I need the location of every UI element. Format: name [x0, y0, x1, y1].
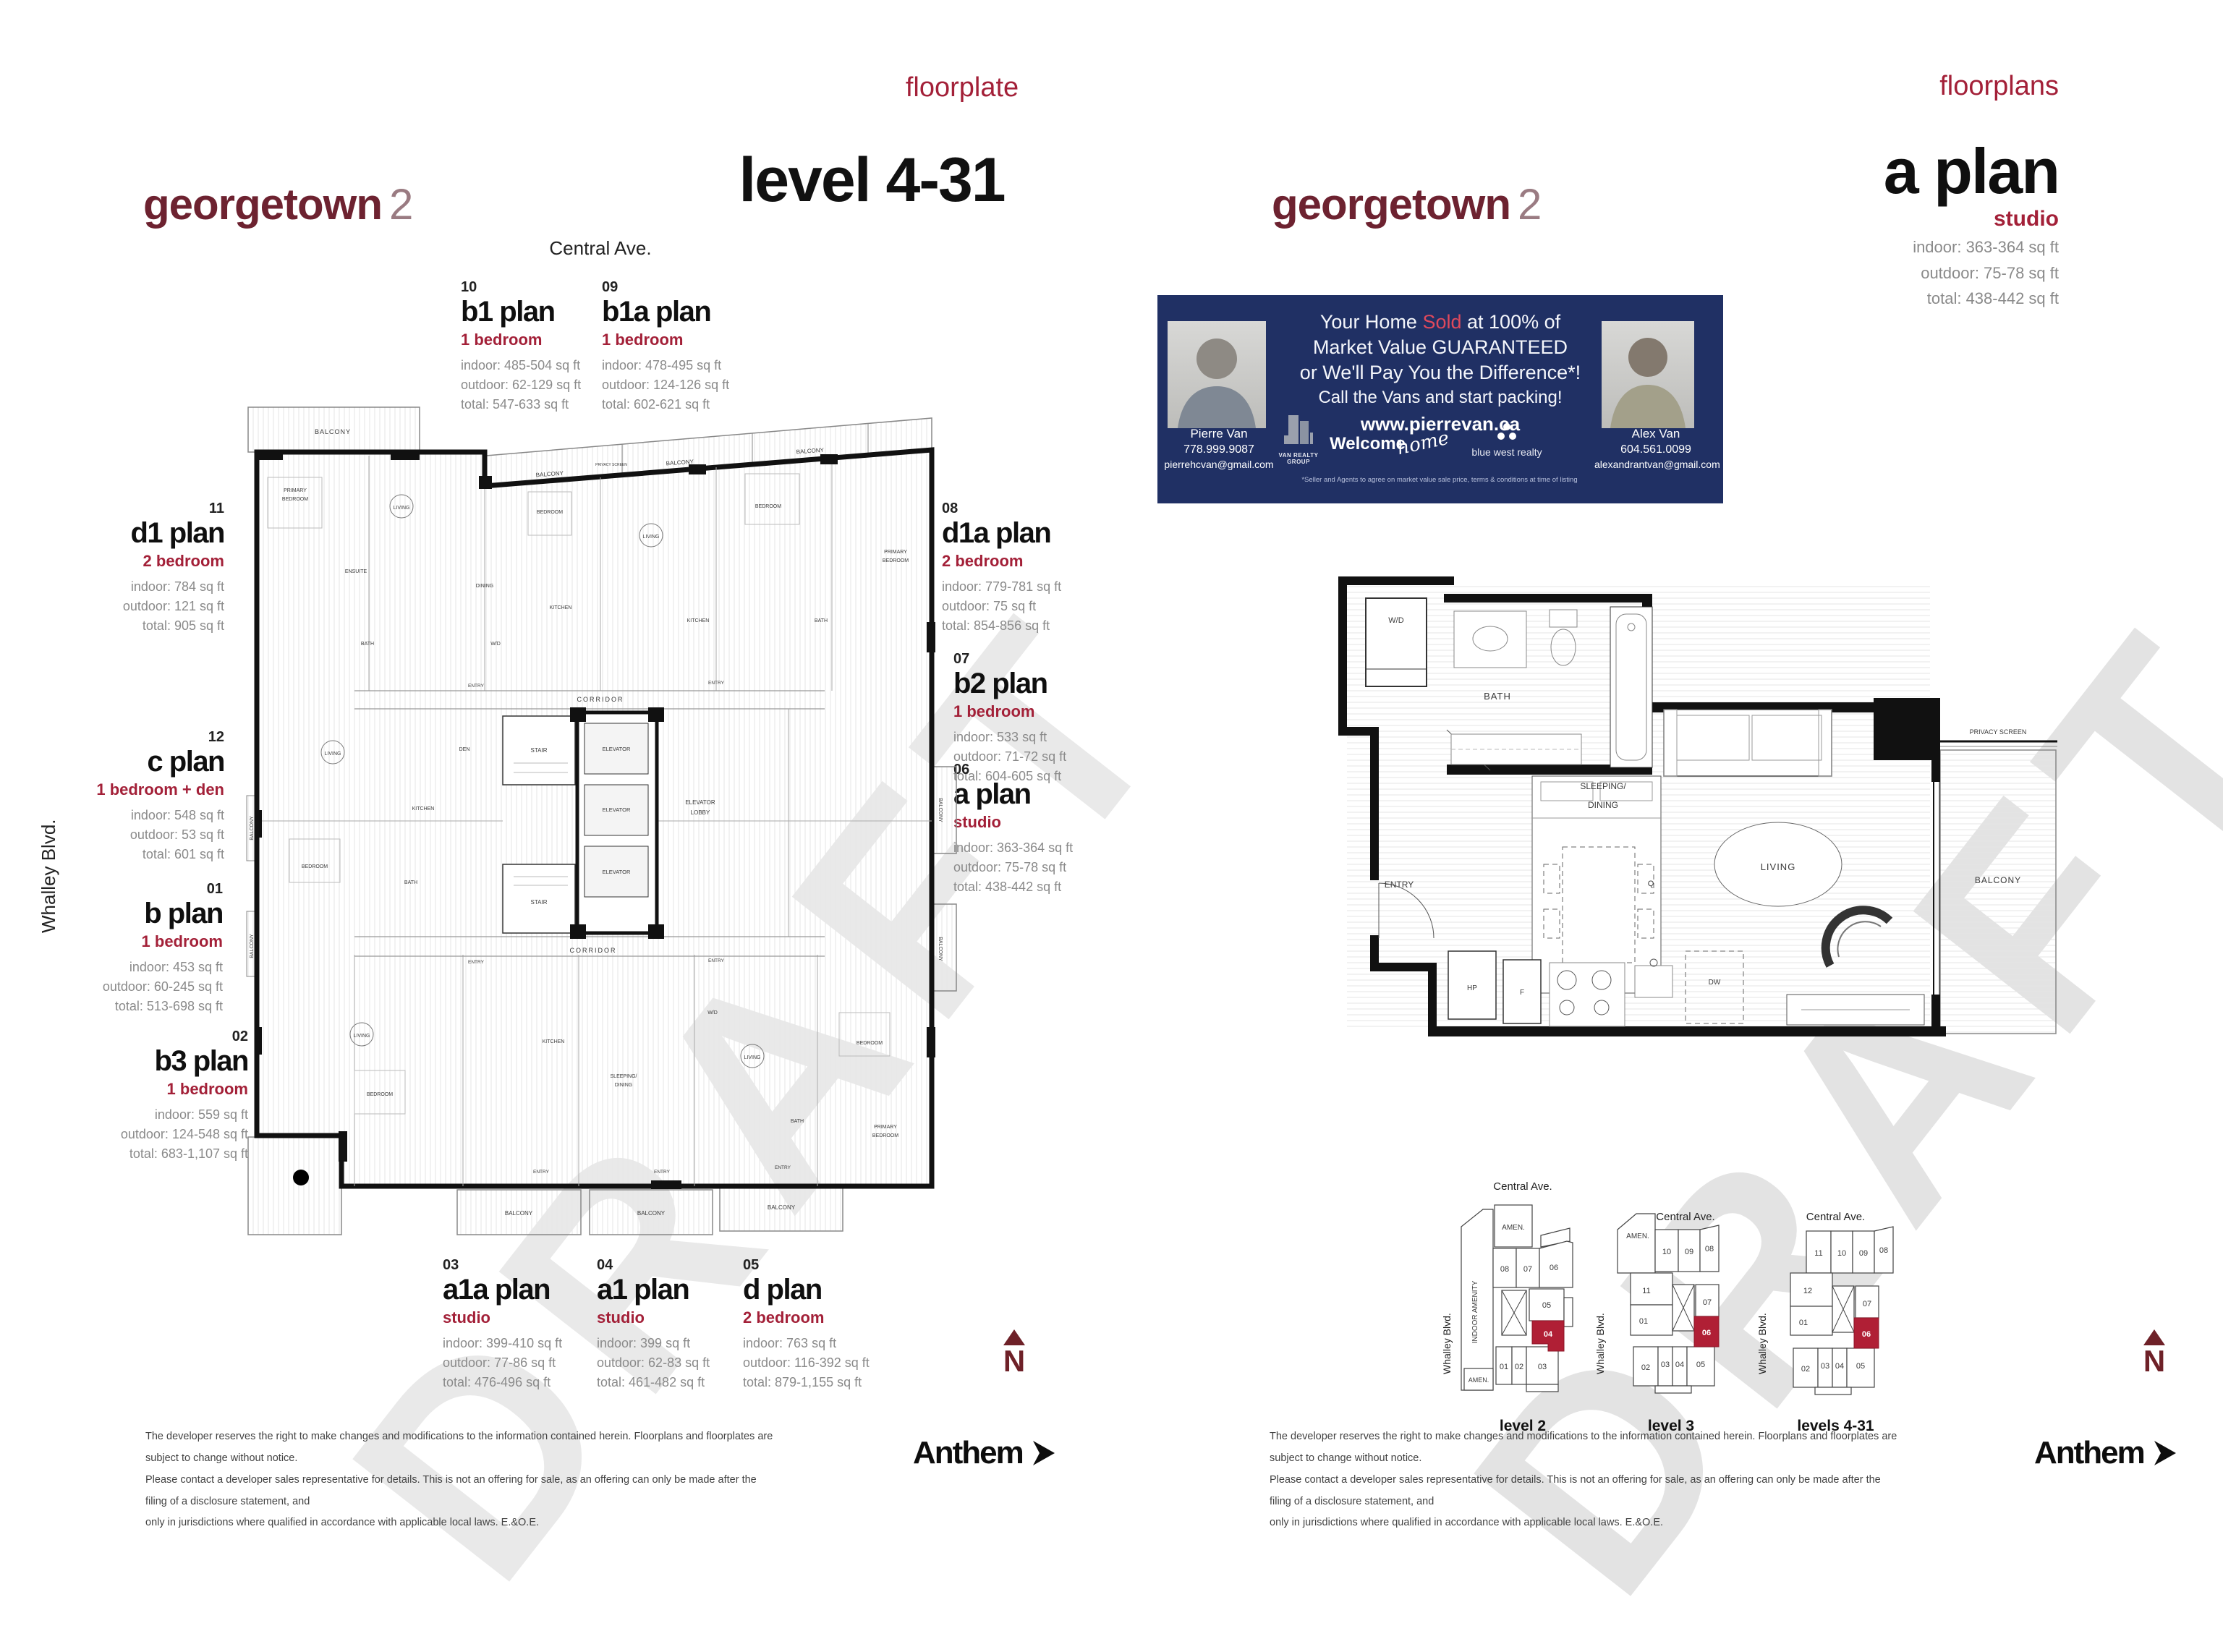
right-project-title: georgetown2 [1272, 179, 1541, 229]
svg-text:KITCHEN: KITCHEN [412, 806, 435, 812]
svg-text:STAIR: STAIR [531, 899, 548, 906]
svg-text:Q: Q [1648, 880, 1654, 888]
svg-text:W/D: W/D [490, 642, 501, 647]
svg-text:04: 04 [1675, 1361, 1684, 1369]
svg-text:KITCHEN: KITCHEN [687, 618, 710, 623]
plan-outdoor: outdoor: 124-548 sq ft [67, 1125, 248, 1144]
plan-name: b3 plan [67, 1047, 248, 1076]
plan-indoor: indoor: 784 sq ft [43, 577, 224, 597]
disclaimer-right: The developer reserves the right to make… [1270, 1426, 1899, 1534]
svg-text:BATH: BATH [815, 618, 828, 623]
plan-total: total: 879-1,155 sq ft [743, 1373, 909, 1392]
svg-text:BALCONY: BALCONY [938, 798, 943, 822]
anthem-logo-left: Anthem [913, 1435, 1056, 1471]
project-number: 2 [1518, 180, 1541, 229]
plan-card-d: 05 d plan 2 bedroom indoor: 763 sq ft ou… [743, 1257, 909, 1392]
plan-number: 02 [67, 1029, 248, 1045]
plan-indoor: indoor: 399 sq ft [597, 1334, 756, 1353]
svg-text:ENTRY: ENTRY [533, 1170, 550, 1175]
svg-text:SLEEPING/: SLEEPING/ [611, 1074, 637, 1079]
plan-card-c: 12 c plan 1 bedroom + den indoor: 548 sq… [22, 729, 224, 864]
svg-text:BEDROOM: BEDROOM [872, 1133, 898, 1138]
plan-outdoor: outdoor: 60-245 sq ft [42, 977, 223, 997]
svg-text:05: 05 [1856, 1362, 1865, 1371]
level-2-diagram: AMEN.INDOOR AMENITY0807060504010203AMEN. [1460, 1204, 1584, 1400]
headline-line2: Market Value GUARANTEED [1280, 335, 1600, 360]
plan-type: 2 bedroom [743, 1308, 909, 1327]
svg-text:BEDROOM: BEDROOM [883, 558, 909, 563]
svg-text:06: 06 [1862, 1330, 1871, 1339]
plan-indoor: indoor: 548 sq ft [22, 806, 224, 825]
right-plan-type: studio [1736, 207, 2059, 231]
plan-total: total: 438-442 sq ft [953, 877, 1113, 897]
svg-text:BATH: BATH [791, 1119, 804, 1124]
street-whalley-blvd-l2: Whalley Blvd. [1441, 1280, 1453, 1374]
svg-text:ENTRY: ENTRY [775, 1165, 791, 1170]
plan-card-b1a: 09 b1a plan 1 bedroom indoor: 478-495 sq… [602, 279, 768, 414]
svg-text:BALCONY: BALCONY [250, 934, 255, 958]
svg-text:ENTRY: ENTRY [468, 960, 485, 965]
north-arrow-right: N [2133, 1329, 2176, 1377]
plan-type: 1 bedroom [461, 331, 620, 349]
plan-name: b2 plan [953, 669, 1113, 699]
disclaimer-line: Please contact a developer sales represe… [1270, 1470, 1899, 1513]
plan-number: 01 [42, 881, 223, 898]
plan-outdoor: outdoor: 53 sq ft [22, 825, 224, 845]
anthem-wordmark: Anthem [913, 1435, 1023, 1471]
plan-type: studio [443, 1308, 602, 1327]
plan-indoor: indoor: 478-495 sq ft [602, 356, 768, 375]
headline-line3: or We'll Pay You the Difference*! [1280, 360, 1600, 386]
anthem-wordmark: Anthem [2034, 1435, 2144, 1471]
svg-text:LIVING: LIVING [325, 752, 341, 757]
right-corner-label: floorplans [1852, 71, 2059, 102]
plan-type: 2 bedroom [942, 552, 1115, 571]
svg-text:11: 11 [1642, 1287, 1650, 1295]
north-triangle-icon [1003, 1329, 1025, 1345]
plan-name: b1 plan [461, 297, 620, 327]
blue-west-caption: blue west realty [1460, 446, 1554, 458]
svg-text:LIVING: LIVING [394, 506, 410, 511]
svg-text:BALCONY: BALCONY [938, 937, 943, 961]
plan-type: studio [953, 813, 1113, 832]
plan-indoor: indoor: 363-364 sq ft [953, 838, 1113, 858]
disclaimer-line: The developer reserves the right to make… [1270, 1426, 1899, 1470]
svg-text:ELEVATOR: ELEVATOR [685, 799, 715, 806]
plan-indoor: indoor: 533 sq ft [953, 728, 1113, 747]
plan-type: studio [597, 1308, 756, 1327]
plan-name: a plan [953, 780, 1113, 809]
plan-type: 1 bedroom + den [22, 780, 224, 799]
street-whalley-blvd-l3: Whalley Blvd. [1594, 1280, 1606, 1374]
north-letter: N [2133, 1345, 2176, 1377]
right-plan-stats: indoor: 363-364 sq ft outdoor: 75-78 sq … [1736, 234, 2059, 312]
svg-text:BEDROOM: BEDROOM [367, 1092, 393, 1097]
plan-type: 2 bedroom [43, 552, 224, 571]
plan-number: 11 [43, 501, 224, 517]
svg-text:09: 09 [1685, 1248, 1693, 1256]
script-welcome: Welcome [1330, 434, 1406, 454]
svg-text:BALCONY: BALCONY [637, 1210, 666, 1217]
project-number: 2 [389, 180, 412, 229]
street-central-ave-left: Central Ave. [528, 237, 673, 260]
svg-text:BALCONY: BALCONY [250, 816, 255, 840]
svg-text:BATH: BATH [361, 642, 374, 647]
plan-name: b1a plan [602, 297, 768, 327]
svg-text:01: 01 [1639, 1317, 1648, 1326]
plan-name: a1 plan [597, 1275, 756, 1305]
svg-text:STAIR: STAIR [531, 747, 548, 754]
plan-type: 1 bedroom [42, 932, 223, 951]
left-project-title: georgetown2 [143, 179, 412, 229]
plan-outdoor: outdoor: 116-392 sq ft [743, 1353, 909, 1373]
plan-card-d1: 11 d1 plan 2 bedroom indoor: 784 sq ft o… [43, 501, 224, 636]
plan-name: d plan [743, 1275, 909, 1305]
svg-text:CORRIDOR: CORRIDOR [570, 947, 617, 954]
plan-number: 05 [743, 1257, 909, 1274]
svg-text:BEDROOM: BEDROOM [857, 1041, 883, 1046]
svg-text:ELEVATOR: ELEVATOR [603, 806, 631, 813]
svg-text:01: 01 [1799, 1319, 1808, 1327]
stat-indoor: indoor: 363-364 sq ft [1736, 234, 2059, 260]
disclaimer-line: only in jurisdictions where qualified in… [1270, 1512, 1899, 1534]
agent-name: Pierre Van [1157, 427, 1280, 441]
svg-text:PRIVACY SCREEN: PRIVACY SCREEN [1970, 728, 2027, 736]
project-name: georgetown [143, 180, 382, 229]
svg-text:KITCHEN: KITCHEN [543, 1039, 565, 1044]
plan-number: 12 [22, 729, 224, 746]
svg-text:ENTRY: ENTRY [708, 681, 725, 686]
svg-text:F: F [1520, 989, 1524, 997]
svg-text:W/D: W/D [707, 1010, 718, 1016]
headline-pre: Your Home [1320, 311, 1423, 333]
svg-text:09: 09 [1859, 1249, 1868, 1258]
plan-card-a1a: 03 a1a plan studio indoor: 399-410 sq ft… [443, 1257, 602, 1392]
plan-indoor: indoor: 779-781 sq ft [942, 577, 1115, 597]
svg-text:ELEVATOR: ELEVATOR [603, 869, 631, 875]
svg-text:ENTRY: ENTRY [1385, 880, 1414, 890]
levels-4-31-diagram: 111009081201070602030405 [1776, 1209, 1895, 1399]
plan-card-b1: 10 b1 plan 1 bedroom indoor: 485-504 sq … [461, 279, 620, 414]
plan-outdoor: outdoor: 75 sq ft [942, 597, 1115, 616]
level-3-diagram: AMEN.1009081101070602030405 [1613, 1204, 1722, 1400]
svg-text:DW: DW [1709, 979, 1721, 987]
svg-text:05: 05 [1542, 1301, 1551, 1310]
plan-indoor: indoor: 559 sq ft [67, 1105, 248, 1125]
plan-type: 1 bedroom [67, 1080, 248, 1099]
svg-text:07: 07 [1703, 1298, 1712, 1307]
floorplate-drawing: BALCONYBALCONYBALCONYBALCONYPRIVACY SCRE… [246, 405, 962, 1259]
svg-text:05: 05 [1696, 1361, 1705, 1369]
north-letter: N [993, 1345, 1036, 1377]
banner-call-line: Call the Vans and start packing! [1280, 388, 1600, 408]
svg-text:BEDROOM: BEDROOM [537, 510, 563, 515]
svg-text:LIVING: LIVING [354, 1034, 370, 1039]
a-plan-drawing: W/DBATHSLEEPING/DININGQLIVINGENTRYBALCON… [1324, 561, 2062, 1052]
headline-sold: Sold [1422, 311, 1461, 333]
agent-photo-pierre [1168, 321, 1266, 428]
svg-text:W/D: W/D [1388, 616, 1403, 625]
svg-text:BATH: BATH [1484, 691, 1511, 702]
svg-text:02: 02 [1801, 1365, 1810, 1374]
svg-text:11: 11 [1814, 1249, 1822, 1258]
svg-text:02: 02 [1641, 1363, 1650, 1372]
agent-phone: 604.561.0099 [1594, 443, 1717, 456]
street-whalley-blvd-l4: Whalley Blvd. [1756, 1280, 1768, 1374]
plan-outdoor: outdoor: 62-83 sq ft [597, 1353, 756, 1373]
plan-indoor: indoor: 453 sq ft [42, 958, 223, 977]
plan-number: 10 [461, 279, 620, 296]
svg-text:AMEN.: AMEN. [1502, 1224, 1525, 1232]
disclaimer-line: Please contact a developer sales represe… [145, 1470, 775, 1513]
svg-text:LIVING: LIVING [643, 535, 660, 540]
disclaimer-left: The developer reserves the right to make… [145, 1426, 775, 1534]
plan-total: total: 601 sq ft [22, 845, 224, 864]
van-realty-caption: VAN REALTY GROUP [1267, 452, 1330, 465]
plan-total: total: 461-482 sq ft [597, 1373, 756, 1392]
svg-text:04: 04 [1835, 1362, 1844, 1371]
plan-number: 04 [597, 1257, 756, 1274]
anthem-arrow-icon [2150, 1441, 2177, 1465]
anthem-logo-right: Anthem [2034, 1435, 2177, 1471]
svg-text:PRIMARY: PRIMARY [284, 488, 307, 493]
plan-total: total: 683-1,107 sq ft [67, 1144, 248, 1164]
plan-outdoor: outdoor: 62-129 sq ft [461, 375, 620, 395]
plan-name: d1 plan [43, 519, 224, 548]
agent-email: pierrehcvan@gmail.com [1157, 459, 1280, 470]
svg-text:10: 10 [1837, 1249, 1846, 1258]
contact-pierre: Pierre Van 778.999.9087 pierrehcvan@gmai… [1157, 427, 1280, 470]
svg-text:06: 06 [1550, 1264, 1558, 1272]
left-corner-label: floorplate [832, 72, 1092, 103]
svg-text:07: 07 [1523, 1265, 1532, 1274]
svg-text:03: 03 [1821, 1362, 1829, 1371]
svg-text:INDOOR AMENITY: INDOOR AMENITY [1471, 1280, 1479, 1343]
svg-text:AMEN.: AMEN. [1468, 1376, 1489, 1384]
plan-type: 1 bedroom [602, 331, 768, 349]
svg-text:PRIMARY: PRIMARY [884, 550, 907, 555]
plan-total: total: 854-856 sq ft [942, 616, 1115, 636]
disclaimer-line: only in jurisdictions where qualified in… [145, 1512, 775, 1534]
plan-number: 08 [942, 501, 1115, 517]
stat-total: total: 438-442 sq ft [1736, 286, 2059, 312]
right-plan-title: a plan [1736, 135, 2059, 208]
plan-name: d1a plan [942, 519, 1115, 548]
anthem-arrow-icon [1029, 1441, 1056, 1465]
svg-text:AMEN.: AMEN. [1626, 1232, 1649, 1240]
svg-text:KITCHEN: KITCHEN [550, 605, 572, 610]
svg-text:LIVING: LIVING [1761, 861, 1796, 872]
banner-headline: Your Home Sold at 100% of Market Value G… [1280, 310, 1600, 386]
plan-total: total: 476-496 sq ft [443, 1373, 602, 1392]
svg-text:ENTRY: ENTRY [468, 684, 485, 689]
north-arrow-left: N [993, 1329, 1036, 1377]
plan-outdoor: outdoor: 124-126 sq ft [602, 375, 768, 395]
banner-fine-print: *Seller and Agents to agree on market va… [1237, 476, 1642, 484]
left-page-title: level 4-31 [709, 145, 1034, 216]
project-name: georgetown [1272, 180, 1510, 229]
plan-number: 07 [953, 651, 1113, 668]
plan-number: 06 [953, 762, 1113, 778]
van-realty-group-logo: VAN REALTY GROUP [1267, 414, 1330, 465]
ad-banner: Your Home Sold at 100% of Market Value G… [1157, 295, 1723, 503]
svg-text:BATH: BATH [404, 880, 417, 885]
agent-name: Alex Van [1594, 427, 1717, 441]
svg-text:BEDROOM: BEDROOM [282, 497, 308, 502]
plan-outdoor: outdoor: 75-78 sq ft [953, 858, 1113, 877]
blue-west-realty-logo: blue west realty [1460, 422, 1554, 458]
svg-text:BALCONY: BALCONY [505, 1210, 533, 1217]
plan-indoor: indoor: 763 sq ft [743, 1334, 909, 1353]
plan-indoor: indoor: 485-504 sq ft [461, 356, 620, 375]
svg-text:CORRIDOR: CORRIDOR [577, 696, 624, 703]
agent-email: alexandrantvan@gmail.com [1594, 459, 1717, 470]
svg-text:ENTRY: ENTRY [654, 1170, 671, 1175]
welcome-home-script: Welcomehome [1330, 433, 1453, 454]
plan-card-a1: 04 a1 plan studio indoor: 399 sq ft outd… [597, 1257, 756, 1392]
plan-indoor: indoor: 399-410 sq ft [443, 1334, 602, 1353]
plan-number: 03 [443, 1257, 602, 1274]
plan-card-d1a: 08 d1a plan 2 bedroom indoor: 779-781 sq… [942, 501, 1115, 636]
svg-text:DEN: DEN [459, 747, 470, 752]
plan-total: total: 513-698 sq ft [42, 997, 223, 1016]
svg-text:LIVING: LIVING [744, 1055, 761, 1060]
building-icon [1283, 414, 1314, 447]
svg-text:ENTRY: ENTRY [708, 958, 725, 963]
agent-phone: 778.999.9087 [1157, 443, 1280, 456]
headline-post: at 100% of [1462, 311, 1561, 333]
svg-text:SLEEPING/: SLEEPING/ [1580, 781, 1626, 791]
agent-silhouette-icon [1602, 321, 1694, 428]
plan-card-b: 01 b plan 1 bedroom indoor: 453 sq ft ou… [42, 881, 223, 1016]
plan-card-b3: 02 b3 plan 1 bedroom indoor: 559 sq ft o… [67, 1029, 248, 1164]
svg-text:LOBBY: LOBBY [691, 809, 710, 816]
svg-text:BEDROOM: BEDROOM [755, 504, 781, 509]
svg-text:BEDROOM: BEDROOM [302, 864, 328, 869]
plan-outdoor: outdoor: 121 sq ft [43, 597, 224, 616]
svg-text:PRIMARY: PRIMARY [874, 1125, 897, 1130]
svg-text:ENSUITE: ENSUITE [345, 569, 367, 574]
svg-text:02: 02 [1515, 1363, 1523, 1371]
contact-alex: Alex Van 604.561.0099 alexandrantvan@gma… [1594, 427, 1717, 470]
svg-text:03: 03 [1538, 1363, 1547, 1371]
north-triangle-icon [2143, 1329, 2165, 1345]
svg-text:12: 12 [1803, 1287, 1812, 1295]
svg-text:01: 01 [1500, 1363, 1508, 1371]
svg-text:08: 08 [1879, 1246, 1888, 1255]
plan-number: 09 [602, 279, 768, 296]
plan-type: 1 bedroom [953, 702, 1113, 721]
svg-text:04: 04 [1544, 1330, 1553, 1339]
agent-photo-alex [1602, 321, 1694, 428]
plan-name: b plan [42, 899, 223, 929]
plan-card-a: 06 a plan studio indoor: 363-364 sq ft o… [953, 762, 1113, 897]
svg-text:BALCONY: BALCONY [768, 1204, 796, 1211]
svg-text:10: 10 [1662, 1248, 1671, 1256]
svg-text:03: 03 [1661, 1361, 1670, 1369]
stat-outdoor: outdoor: 75-78 sq ft [1736, 260, 2059, 286]
svg-text:ELEVATOR: ELEVATOR [603, 746, 631, 752]
street-central-ave-l2: Central Ave. [1461, 1180, 1584, 1193]
svg-text:BALCONY: BALCONY [1975, 875, 2021, 885]
script-home: home [1395, 427, 1451, 459]
svg-text:BALCONY: BALCONY [315, 428, 351, 435]
svg-text:06: 06 [1702, 1329, 1711, 1337]
svg-text:08: 08 [1500, 1265, 1509, 1274]
plan-name: a1a plan [443, 1275, 602, 1305]
plan-outdoor: outdoor: 77-86 sq ft [443, 1353, 602, 1373]
dots-icon [1495, 422, 1519, 441]
svg-text:PRIVACY SCREEN: PRIVACY SCREEN [595, 463, 627, 467]
plan-name: c plan [22, 747, 224, 777]
disclaimer-line: The developer reserves the right to make… [145, 1426, 775, 1470]
svg-text:DINING: DINING [476, 584, 494, 589]
agent-silhouette-icon [1168, 321, 1266, 428]
svg-text:08: 08 [1705, 1245, 1714, 1253]
svg-text:07: 07 [1863, 1300, 1871, 1308]
plan-total: total: 905 sq ft [43, 616, 224, 636]
svg-text:HP: HP [1467, 984, 1477, 992]
svg-text:DINING: DINING [1588, 800, 1618, 810]
svg-text:DINING: DINING [615, 1083, 633, 1088]
